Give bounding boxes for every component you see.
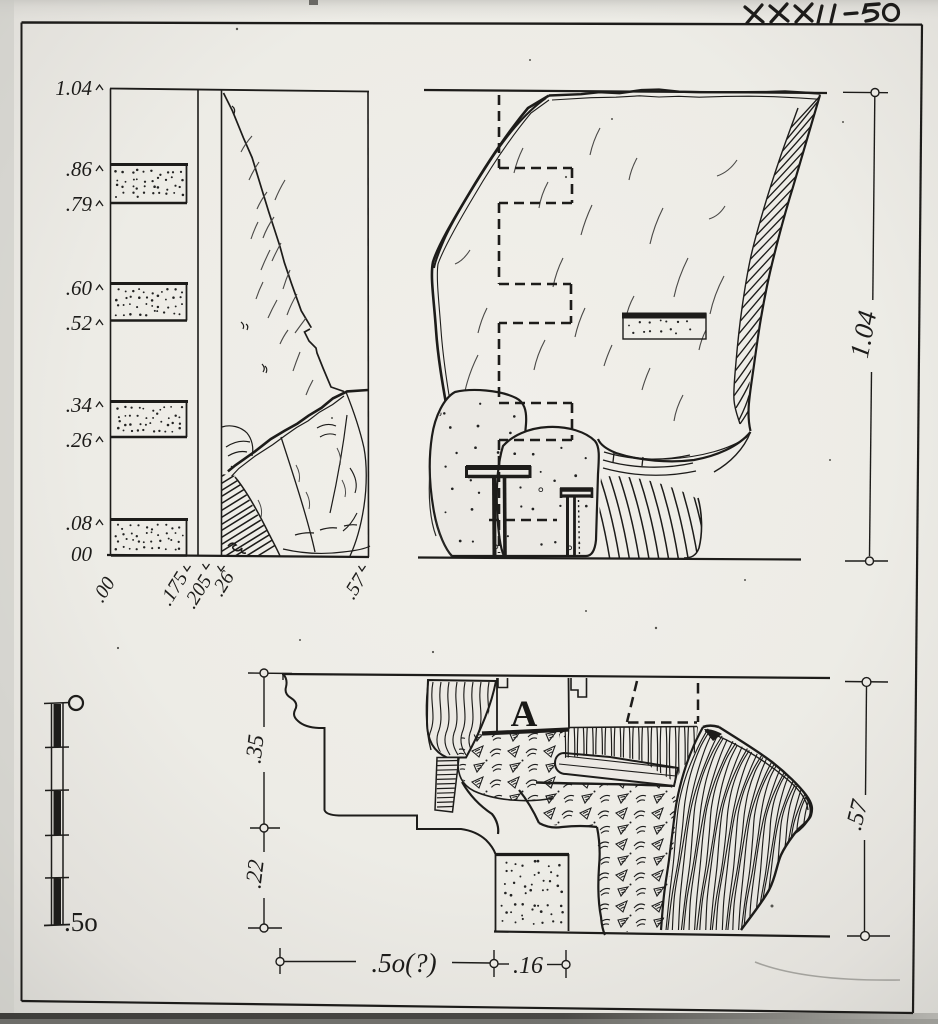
svg-text:.34: .34 [66,393,93,417]
svg-text:1.04: 1.04 [55,76,92,100]
svg-text:.86: .86 [66,157,93,181]
svg-text:.79: .79 [66,192,93,216]
svg-text:.16: .16 [513,953,543,979]
svg-text:.5o(?): .5o(?) [371,948,436,978]
svg-text:00: 00 [71,542,93,566]
svg-text:.5o: .5o [64,907,98,937]
svg-text:.60: .60 [66,276,93,300]
svg-text:.08: .08 [66,511,93,535]
svg-text:.26: .26 [66,428,93,452]
svg-text:.52: .52 [66,311,93,335]
svg-text:.35: .35 [240,733,268,765]
svg-text:A: A [511,694,538,735]
svg-text:.22: .22 [240,858,268,890]
